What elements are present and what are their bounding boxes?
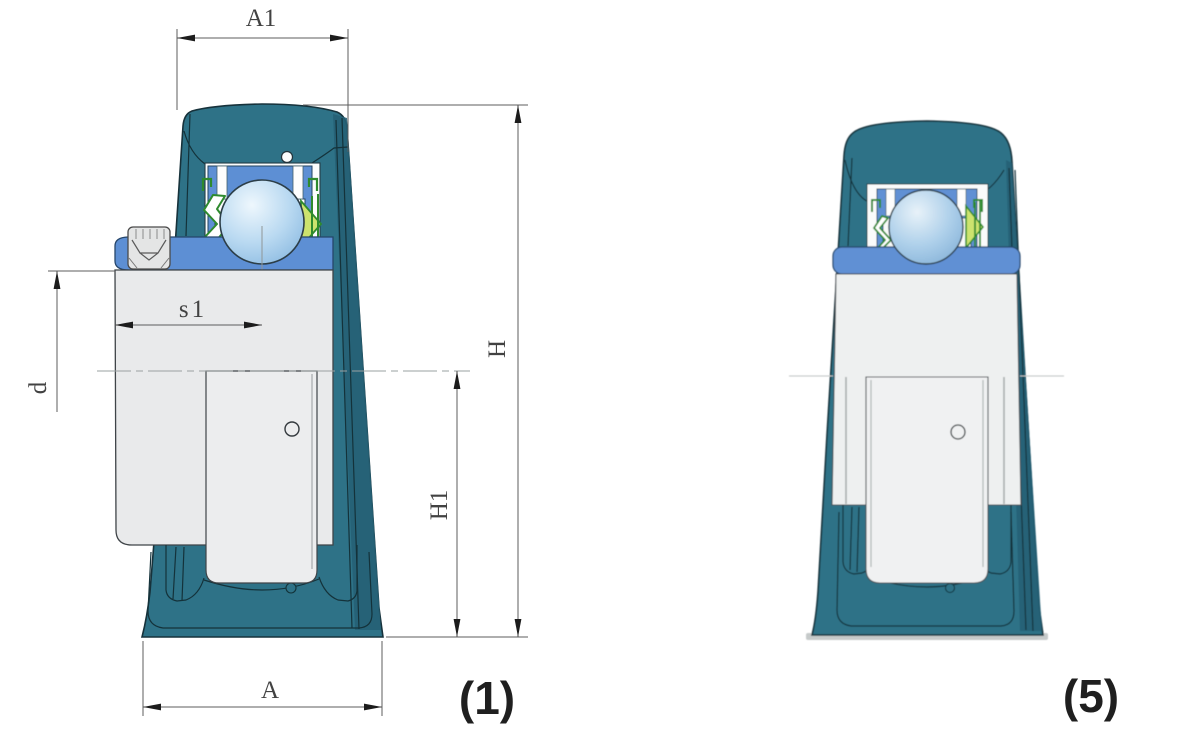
view-5-caption: (5) bbox=[1063, 670, 1119, 722]
d-arrow-top bbox=[54, 271, 61, 289]
bearing-drawing-svg: A1 H H1 A s1 bbox=[0, 0, 1193, 742]
a-arrow-right bbox=[364, 704, 382, 711]
h1-arrow-bottom bbox=[454, 619, 461, 637]
h1-arrow-top bbox=[454, 371, 461, 389]
a-arrow-left bbox=[143, 704, 161, 711]
d-label: d bbox=[25, 381, 52, 394]
inner-ring-sleeve bbox=[206, 371, 317, 583]
h1-label: H1 bbox=[426, 490, 453, 521]
inner-ring-slot-right bbox=[293, 166, 303, 199]
view-5-plain-section bbox=[789, 121, 1064, 640]
view-1-dimensioned-section: A1 H H1 A s1 bbox=[25, 5, 528, 724]
a1-arrow-left bbox=[177, 35, 195, 42]
sleeve-hole bbox=[285, 422, 299, 436]
sleeve-hole-right-view bbox=[951, 425, 965, 439]
h-label: H bbox=[484, 340, 511, 358]
drawing-canvas: A1 H H1 A s1 bbox=[0, 0, 1193, 742]
a1-label: A1 bbox=[246, 5, 277, 32]
dimension-a: A bbox=[143, 641, 382, 716]
grease-hole bbox=[282, 152, 293, 163]
inner-ring-sleeve-right-view bbox=[866, 377, 988, 583]
h-arrow-top bbox=[515, 105, 522, 123]
base-notch bbox=[286, 583, 296, 593]
s1-label: s1 bbox=[179, 296, 207, 323]
h-arrow-bottom bbox=[515, 619, 522, 637]
a1-arrow-right bbox=[330, 35, 348, 42]
base-notch-right-view bbox=[946, 584, 955, 593]
a-label: A bbox=[261, 677, 279, 704]
bearing-ball-right-view bbox=[889, 190, 963, 264]
view-1-caption: (1) bbox=[459, 672, 515, 724]
inner-ring-slot-left bbox=[217, 166, 227, 199]
dimension-h1: H1 bbox=[426, 371, 460, 637]
dimension-d: d bbox=[25, 271, 115, 412]
